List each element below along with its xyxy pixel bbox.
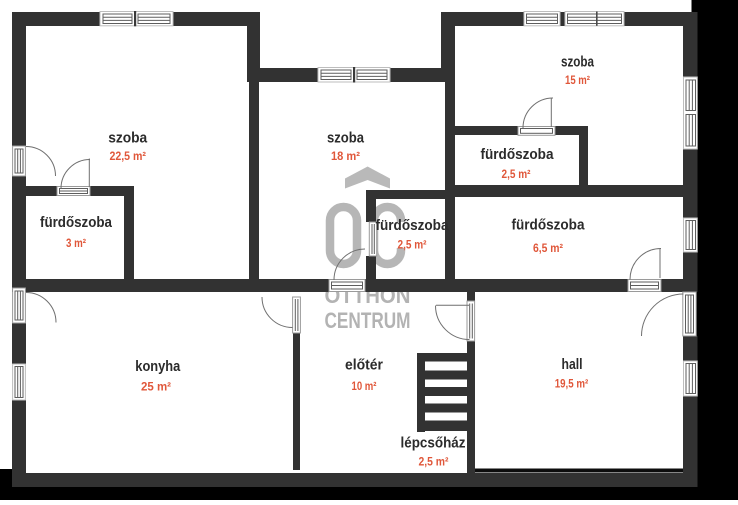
svg-text:fürdőszoba: fürdőszoba bbox=[376, 217, 450, 234]
svg-text:szoba: szoba bbox=[108, 130, 148, 147]
svg-text:22,5 m²: 22,5 m² bbox=[109, 149, 146, 163]
svg-text:fürdőszoba: fürdőszoba bbox=[512, 217, 586, 234]
svg-text:előtér: előtér bbox=[345, 357, 383, 374]
svg-text:CENTRUM: CENTRUM bbox=[325, 308, 411, 333]
svg-text:25 m²: 25 m² bbox=[141, 380, 171, 394]
svg-text:fürdőszoba: fürdőszoba bbox=[40, 214, 113, 231]
svg-text:2,5 m²: 2,5 m² bbox=[419, 455, 449, 469]
svg-text:3 m²: 3 m² bbox=[66, 236, 86, 250]
svg-text:fürdőszoba: fürdőszoba bbox=[481, 146, 555, 163]
svg-text:2,5 m²: 2,5 m² bbox=[502, 167, 531, 181]
svg-text:szoba: szoba bbox=[561, 54, 595, 71]
svg-text:2,5 m²: 2,5 m² bbox=[398, 238, 427, 252]
svg-text:konyha: konyha bbox=[135, 358, 181, 375]
svg-text:lépcsőház: lépcsőház bbox=[401, 435, 466, 452]
svg-text:15 m²: 15 m² bbox=[565, 73, 590, 87]
svg-text:10 m²: 10 m² bbox=[352, 379, 377, 393]
svg-text:19,5 m²: 19,5 m² bbox=[555, 377, 589, 391]
svg-text:18 m²: 18 m² bbox=[331, 149, 360, 163]
svg-text:6,5 m²: 6,5 m² bbox=[533, 241, 563, 255]
svg-text:hall: hall bbox=[562, 356, 583, 373]
svg-text:szoba: szoba bbox=[327, 130, 365, 147]
